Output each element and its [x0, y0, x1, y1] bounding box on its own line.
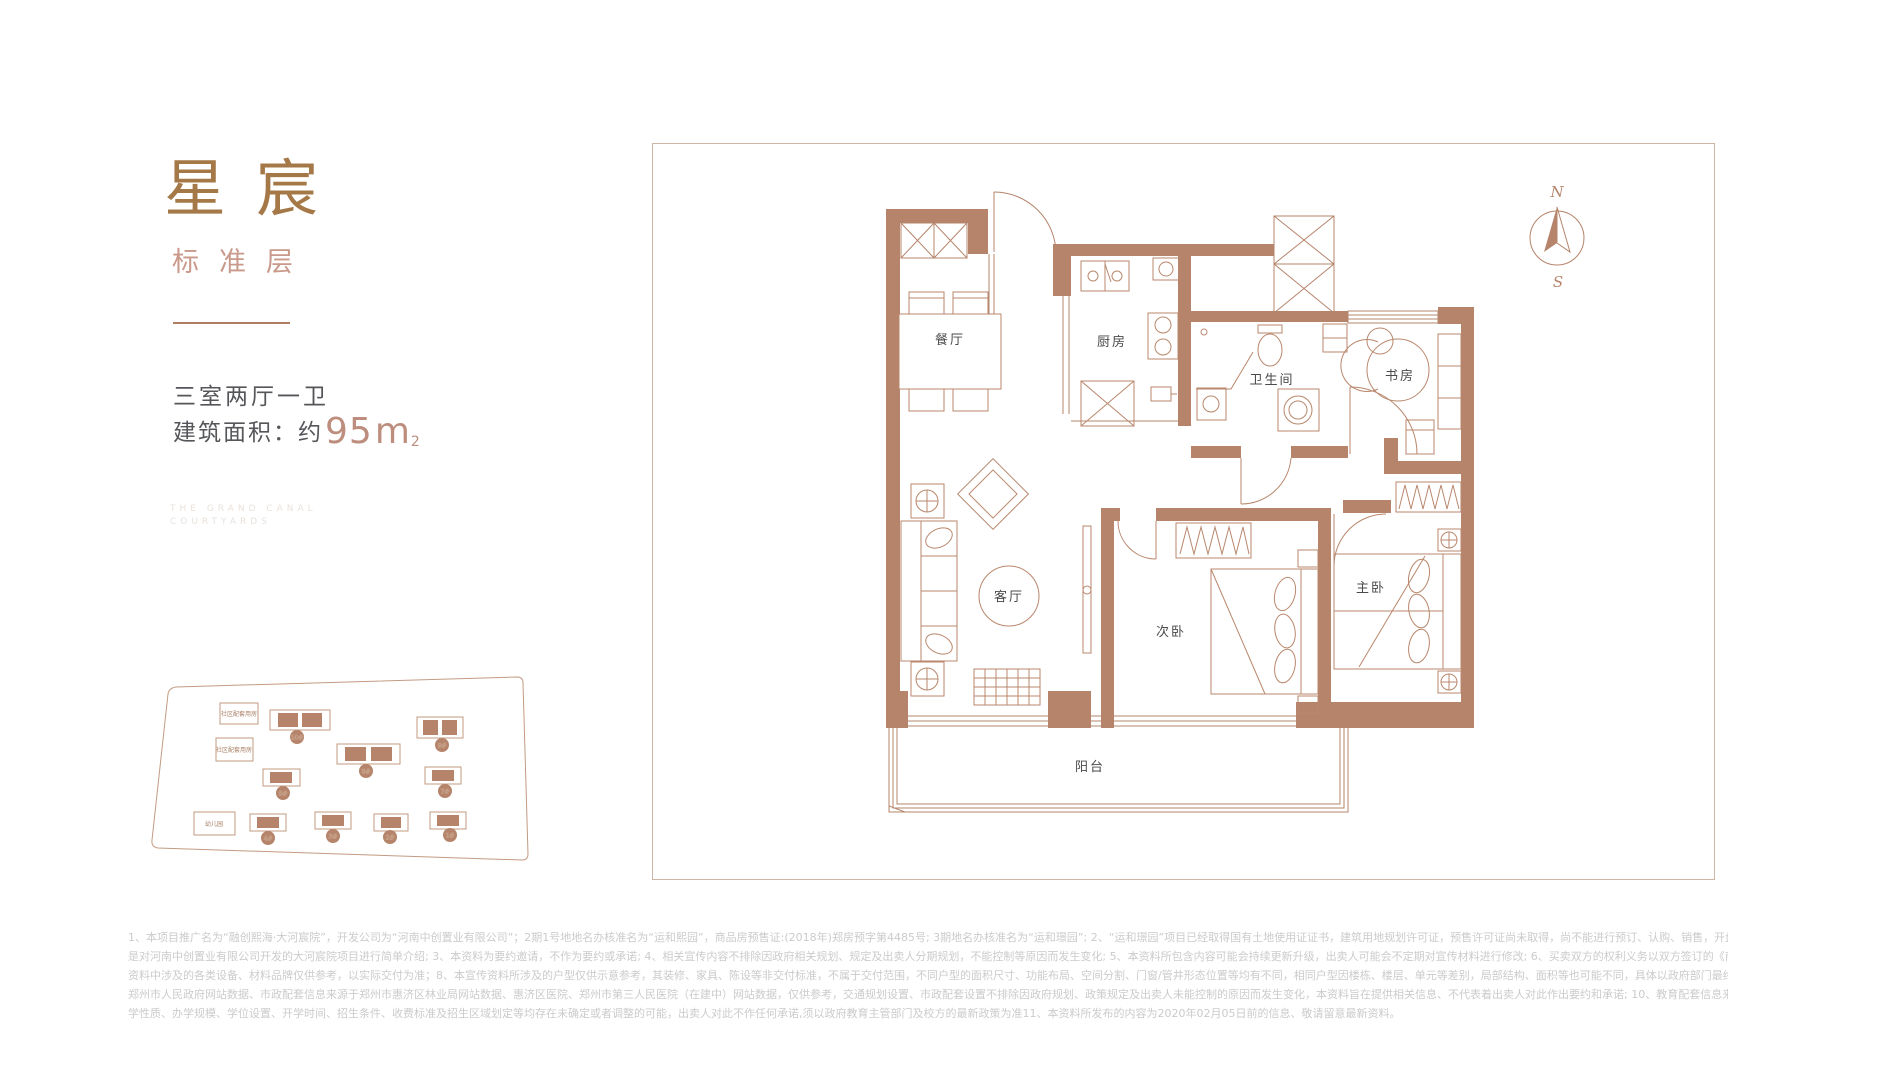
site-plan: 社区配套用房 社区配套用房 幼儿园 10# 9# 8# 6# 7# 4# 3# … [150, 672, 535, 867]
label-dining: 餐厅 [935, 332, 965, 348]
facility-label-1: 社区配套用房 [221, 710, 257, 718]
building-8: 8# [337, 744, 400, 778]
site-buildings: 10# 9# 8# 6# 7# 4# 3# 2# 1# [250, 710, 466, 845]
entry-cabinet [901, 223, 967, 258]
page-title: 星宸 [164, 138, 348, 228]
building-4: 4# [250, 814, 286, 845]
secondary-wardrobe [1176, 523, 1251, 558]
watermark-line1: THE GRAND CANAL [170, 503, 317, 516]
building-10: 10# [270, 710, 330, 744]
study-furniture [1341, 328, 1461, 454]
title-divider [173, 322, 290, 324]
disclaimer-line-3: 资料中涉及的各类设备、材料品牌仅供参考，以实际交付为准；8、本宣传资料所涉及的户… [128, 966, 1728, 985]
master-bedroom-furniture [1334, 482, 1461, 693]
unit-layout-text: 三室两厅一卫 [173, 377, 329, 411]
building-7: 7# [425, 767, 461, 798]
label-second-bedroom: 次卧 [1156, 624, 1186, 640]
area-superscript: 2 [411, 437, 422, 447]
svg-text:1#: 1# [446, 833, 455, 840]
disclaimer-line-2: 是对河南中创置业有限公司开发的大河宸院项目进行简单介绍; 3、本资料为要约邀请，… [128, 947, 1728, 966]
watermark-line2: COURTYARDS [170, 516, 317, 529]
label-study: 书房 [1385, 368, 1415, 384]
area-unit: m [375, 417, 411, 447]
label-master-bedroom: 主卧 [1356, 581, 1386, 596]
bathroom-furniture [1196, 324, 1347, 504]
study-window [1348, 311, 1438, 323]
living-furniture [901, 459, 1091, 705]
watermark: THE GRAND CANAL COURTYARDS [170, 503, 317, 529]
label-kitchen: 厨房 [1097, 334, 1127, 350]
svg-text:6#: 6# [279, 791, 288, 798]
label-balcony: 阳台 [1075, 760, 1105, 775]
disclaimer-line-1: 1、本项目推广名为“融创熙海·大河宸院”，开发公司为“河南中创置业有限公司”；2… [128, 928, 1728, 947]
dining-furniture [899, 292, 1001, 411]
area-value: 95 [325, 417, 373, 447]
legal-disclaimer: 1、本项目推广名为“融创熙海·大河宸院”，开发公司为“河南中创置业有限公司”；2… [128, 928, 1728, 1023]
entrance-door [994, 192, 1056, 254]
walls [886, 209, 1474, 728]
building-2: 2# [374, 814, 408, 844]
disclaimer-line-5: 学性质、办学规模、学位设置、开学时间、招生条件、收费标准及招生区域划定等均存在未… [128, 1004, 1728, 1023]
svg-text:9#: 9# [438, 743, 447, 750]
facility-label-3: 幼儿园 [205, 820, 223, 828]
building-6: 6# [263, 769, 300, 800]
building-1: 1# [430, 812, 466, 842]
pipe-shaft [1274, 216, 1334, 313]
svg-text:2#: 2# [386, 835, 395, 842]
master-wardrobe [1396, 482, 1461, 512]
disclaimer-line-4: 郑州市人民政府网站数据、市政配套信息来源于郑州市惠济区林业局网站数据、惠济区医院… [128, 985, 1728, 1004]
svg-text:4#: 4# [264, 836, 273, 843]
area-label: 建筑面积：约 [173, 413, 323, 447]
label-living: 客厅 [994, 589, 1024, 605]
floor-plan-frame: 餐厅 厨房 卫生间 书房 客厅 次卧 主卧 阳台 N S [652, 143, 1715, 880]
svg-text:10#: 10# [291, 735, 304, 742]
kitchen-furniture [1081, 258, 1179, 426]
entry-partition [989, 254, 994, 314]
compass-north: N [1549, 183, 1564, 201]
grid-rug [974, 669, 1040, 705]
compass: N S [1530, 183, 1584, 291]
site-plan-boundary [152, 677, 528, 860]
svg-text:3#: 3# [329, 834, 338, 841]
building-3: 3# [315, 812, 351, 843]
building-9: 9# [417, 717, 463, 752]
compass-south: S [1553, 273, 1563, 291]
balcony-railing [889, 728, 1348, 812]
facility-label-2: 社区配套用房 [216, 746, 252, 754]
label-bathroom: 卫生间 [1249, 373, 1294, 388]
page-subtitle: 标准层 [172, 240, 313, 279]
floor-plan: 餐厅 厨房 卫生间 书房 客厅 次卧 主卧 阳台 N S [653, 144, 1714, 879]
svg-text:7#: 7# [441, 789, 450, 796]
svg-text:8#: 8# [362, 769, 371, 776]
second-bedroom-furniture [1118, 521, 1318, 713]
unit-area-text: 建筑面积：约95m2 [173, 413, 422, 447]
